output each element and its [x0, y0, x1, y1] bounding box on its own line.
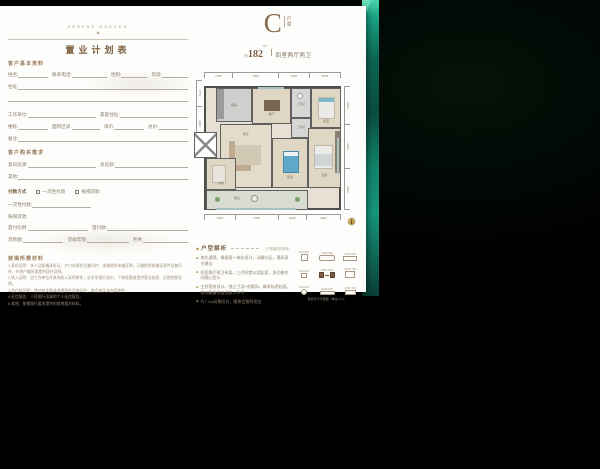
furniture-outline-icon	[301, 289, 307, 295]
dimension-line-bottom: 3300 4500 3000 3600	[204, 214, 341, 220]
checkbox-icon	[75, 190, 79, 194]
field-label: 面积区间:	[52, 124, 72, 130]
balcony-table	[251, 195, 258, 202]
legend-item: 1500×700	[340, 263, 360, 278]
form-row: 住址:	[8, 81, 188, 90]
unit-type-label: 户型	[284, 16, 293, 27]
dimension-line-left: 2750 3600	[196, 80, 202, 140]
unit-letter: C	[264, 10, 282, 37]
dimension-label: 3050	[309, 72, 341, 78]
legend-item: 1400×700	[340, 280, 360, 295]
dimension-label: 2750	[204, 72, 232, 78]
floor-plan: 厨房 餐厅 卫生间 卧室 客厅	[204, 86, 341, 210]
photo-background: SERENE GARDEN ◆ 置业计划表 客户基本资料 姓名: 联系电话: 性…	[0, 0, 600, 469]
checkbox-icon	[36, 190, 40, 194]
room-kitchen: 厨房	[216, 88, 252, 122]
legend-item: 2200×600	[317, 280, 337, 295]
room-label: 主卧	[309, 173, 340, 177]
dining-table	[264, 100, 280, 111]
analysis-note: （户型图仅供参考）	[263, 246, 292, 251]
form-row: 备注:	[8, 133, 188, 142]
legend-caption: 家具尺寸示意图（单位:mm）	[294, 297, 360, 301]
diamond-ornament-icon: ◆	[8, 30, 188, 35]
area-unit: m²	[263, 44, 267, 48]
field-label: 按揭贷款:	[8, 214, 28, 220]
field-label: 总房款:	[100, 162, 115, 168]
room-bedroom-3: 卧室	[311, 88, 341, 128]
bed-pillow	[284, 152, 298, 156]
blank-line	[18, 135, 188, 142]
field-label: 住址:	[8, 84, 18, 90]
form-row: 姓名: 联系电话: 性别: 年龄:	[8, 69, 188, 78]
blank-line	[18, 123, 48, 130]
field-label: 首付比例:	[8, 225, 28, 231]
blank-line	[158, 123, 188, 130]
diamond-bullet-icon: ◆	[196, 299, 198, 304]
furniture-outline-icon	[343, 256, 357, 261]
elevator-shaft	[194, 132, 217, 158]
purchase-plan-form: SERENE GARDEN ◆ 置业计划表 客户基本资料 姓名: 联系电话: 性…	[8, 6, 188, 292]
blank-line	[72, 123, 100, 130]
blank-line	[143, 236, 188, 243]
nightstand-pair-icon	[319, 272, 335, 278]
window-strip	[337, 138, 339, 174]
analysis-bullet: ◆ 主卧套房设计，独立卫浴+衣帽间，尊享私密起居，南向飘窗把自然收入怀中	[196, 284, 292, 296]
form-row	[8, 93, 188, 102]
legend-item: 600×600	[294, 280, 314, 295]
materials-item: 3.首付款证明：首付款发票或收据原件及复印件，商品房买卖合同原件。	[8, 289, 188, 295]
divider-bar	[271, 49, 272, 56]
field-label: 工作单位:	[8, 112, 28, 118]
furniture-outline-icon	[345, 271, 355, 278]
toilet	[297, 93, 303, 99]
form-row: 贷款额: 贷款年限: 月供:	[8, 234, 188, 243]
legend-item: 800×800	[294, 246, 314, 261]
room-label: 厨房	[217, 103, 251, 107]
materials-list: 1.身份证明：本人及配偶身份证、户口本原件及复印件；未婚提供未婚证明，已婚提供结…	[8, 264, 188, 309]
form-row: 意向房源: 总房款:	[8, 159, 188, 168]
payment-option: 一次性付款	[36, 189, 65, 195]
blank-line	[23, 236, 63, 243]
dimension-label: 4500	[235, 214, 277, 220]
dimension-label: 3000	[278, 72, 309, 78]
unit-header: C户型	[196, 10, 360, 37]
blank-line	[28, 111, 96, 118]
diamond-bullet-icon: ◆	[196, 285, 198, 296]
diamond-bullet-icon: ◆	[196, 256, 198, 267]
analysis-title: 户型解析	[201, 244, 227, 252]
room-label: 卫生间	[292, 102, 310, 106]
bed-blanket	[315, 154, 332, 166]
brand-wordmark: SERENE GARDEN	[8, 24, 188, 29]
form-row: 按揭贷款:	[8, 211, 188, 220]
area-value: 182	[248, 49, 263, 60]
blank-line	[28, 161, 96, 168]
dimension-label: 3300	[204, 214, 235, 220]
diamond-bullet-icon: ◆	[196, 270, 198, 281]
blank-line	[32, 201, 91, 208]
dimension-line-top: 2750 4500 3000 3050	[204, 72, 341, 78]
form-row: 首付比例: 首付款:	[8, 222, 188, 231]
bed-white	[314, 145, 333, 169]
field-label: 楼栋:	[8, 124, 18, 130]
room-label: 卧室	[273, 175, 307, 179]
room-study: 书房	[206, 158, 236, 190]
room-bedroom-2: 卧室	[272, 138, 308, 188]
payment-option-label: 一次性付款	[42, 189, 65, 195]
dimension-label: 4500	[232, 72, 278, 78]
legend-item: 450×450	[294, 263, 314, 278]
analysis-bullet: ◆ 南北通透，餐客厨一体化设计，动静分区，通风采光俱佳	[196, 255, 292, 267]
room-label: 客厅	[221, 132, 271, 136]
dimension-label: 3600	[344, 86, 350, 124]
blank-line	[114, 123, 144, 130]
bed-pillow	[319, 98, 334, 102]
plant	[215, 197, 220, 202]
section-basic-info: 客户基本资料	[8, 60, 44, 67]
unit-spec-line: 约182m²四室两厅两卫	[196, 44, 360, 62]
blank-line	[18, 83, 188, 90]
field-label: 贷款额:	[8, 237, 23, 243]
room-bathroom-1: 卫生间	[291, 88, 311, 118]
field-label: 联系电话:	[52, 72, 72, 78]
blank-line	[18, 71, 48, 78]
furniture-outline-icon	[345, 290, 356, 295]
unit-analysis: ◆ 户型解析 （户型图仅供参考） ◆ 南北通透，餐客厨一体化设计，动静分区，通风…	[196, 244, 292, 305]
legend-item: 2400×900	[317, 246, 337, 261]
field-label: 贷款年限:	[67, 237, 87, 243]
dimension-label: 2750	[196, 80, 202, 106]
furniture-outline-icon	[320, 291, 335, 295]
dimension-label: 3900	[344, 168, 350, 210]
diamond-bullet-icon: ◆	[196, 246, 199, 251]
analysis-bullet-text: 主卧套房设计，独立卫浴+衣帽间，尊享私密起居，南向飘窗把自然收入怀中	[200, 284, 292, 296]
analysis-bullet: ◆ 四室两厅两卫布局，三代同堂从容起居，多功能空间随心定义	[196, 270, 292, 282]
field-label: 家庭住址:	[100, 112, 120, 118]
field-label: 一次性付款:	[8, 202, 32, 208]
form-row: 其他:	[8, 171, 188, 180]
form-row: 工作单位: 家庭住址:	[8, 109, 188, 118]
blank-line	[162, 71, 188, 78]
analysis-bullet: ◆ 约7.1m阔景阳台，瞰景会客两相宜	[196, 299, 292, 305]
form-row: 一次性付款:	[8, 199, 188, 208]
field-label: 单价:	[104, 124, 114, 130]
section-mortgage-materials: 按揭所需材料	[8, 255, 44, 262]
section-purchase-demand: 客户购买需求	[8, 149, 44, 156]
field-label: 姓名:	[8, 72, 18, 78]
materials-item: 2.收入证明：由工作单位开具的收入证明原件，近半年银行流水；个体经营者提供营业执…	[8, 276, 188, 287]
legend-item: 1800×2000	[317, 263, 337, 278]
room-label: 餐厅	[253, 112, 290, 116]
title-rule	[8, 39, 188, 40]
blank-line	[87, 236, 128, 243]
payment-method-row: 付款方式 一次性付款 按揭贷款	[8, 186, 188, 195]
blank-line	[121, 71, 147, 78]
dashed-rule	[231, 248, 259, 249]
analysis-bullet-text: 四室两厅两卫布局，三代同堂从容起居，多功能空间随心定义	[200, 270, 292, 282]
window-strip	[216, 208, 296, 210]
field-label: 月供:	[133, 237, 143, 243]
blank-line	[120, 111, 188, 118]
form-row: 楼栋: 面积区间: 单价: 总价:	[8, 121, 188, 130]
dimension-label: 3000	[278, 214, 307, 220]
field-label: 总价:	[148, 124, 158, 130]
materials-item: 5.其他：按揭银行要求提供的其他相关材料。	[8, 302, 188, 308]
field-label: 其他:	[8, 174, 18, 180]
field-label: 备注:	[8, 136, 18, 142]
window-strip	[258, 87, 284, 89]
payment-option-label: 按揭贷款	[81, 189, 99, 195]
legend-item: 2000×900	[340, 246, 360, 261]
compass-icon	[348, 218, 355, 225]
room-label: 阳台	[227, 196, 247, 200]
field-label: 意向房源:	[8, 162, 28, 168]
blank-line	[115, 161, 188, 168]
payment-label: 付款方式	[8, 189, 26, 195]
blank-line	[107, 224, 188, 231]
room-spec: 四室两厅两卫	[276, 53, 312, 59]
bed	[318, 97, 335, 119]
furniture-outline-icon	[319, 255, 335, 261]
blank-line	[72, 71, 107, 78]
blank-line	[18, 173, 188, 180]
dimension-label: 3600	[306, 214, 341, 220]
room-dining: 餐厅	[252, 88, 291, 124]
analysis-bullet-text: 南北通透，餐客厨一体化设计，动静分区，通风采光俱佳	[200, 255, 292, 267]
living-rug	[235, 145, 261, 165]
blank-line	[28, 224, 88, 231]
materials-item: 1.身份证明：本人及配偶身份证、户口本原件及复印件；未婚提供未婚证明，已婚提供结…	[8, 264, 188, 275]
bed-blue	[283, 151, 299, 173]
furniture-size-legend: 800×800 2400×900 2000×900 450×450 1800×2…	[294, 246, 360, 300]
field-label: 年龄:	[151, 72, 161, 78]
analysis-heading-row: ◆ 户型解析 （户型图仅供参考）	[196, 244, 292, 252]
plant	[295, 197, 300, 202]
dimension-label: 4200	[344, 124, 350, 168]
room-label: 卧室	[312, 119, 340, 123]
brochure-page: SERENE GARDEN ◆ 置业计划表 客户基本资料 姓名: 联系电话: 性…	[0, 6, 366, 292]
materials-item: 4.征信报告：人民银行出具的个人征信报告。	[8, 295, 188, 301]
room-label: 书房	[207, 181, 235, 185]
payment-option: 按揭贷款	[75, 189, 99, 195]
furniture-outline-icon	[301, 273, 307, 278]
dimension-line-right: 3600 4200 3900	[344, 86, 350, 210]
room-balcony: 阳台	[206, 190, 308, 210]
furniture-outline-icon	[301, 254, 308, 261]
form-title: 置业计划表	[8, 43, 188, 56]
field-label: 性别:	[111, 72, 121, 78]
field-label: 首付款:	[92, 225, 107, 231]
blank-line	[8, 95, 188, 102]
analysis-bullet-text: 约7.1m阔景阳台，瞰景会客两相宜	[200, 299, 261, 305]
